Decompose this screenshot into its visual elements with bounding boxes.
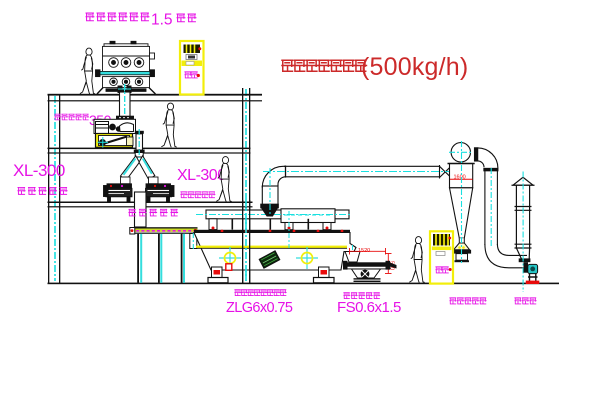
svg-text:XL-300: XL-300 <box>177 167 226 184</box>
svg-text:(500kg/h): (500kg/h) <box>361 53 468 81</box>
svg-text:XL-300: XL-300 <box>13 161 65 180</box>
svg-text:1600: 1600 <box>454 175 466 181</box>
svg-text:ZLG6x0.75: ZLG6x0.75 <box>226 300 293 316</box>
svg-text:1520: 1520 <box>358 248 370 254</box>
svg-text:FS0.6x1.5: FS0.6x1.5 <box>337 299 401 316</box>
svg-text:1.5: 1.5 <box>151 12 173 29</box>
